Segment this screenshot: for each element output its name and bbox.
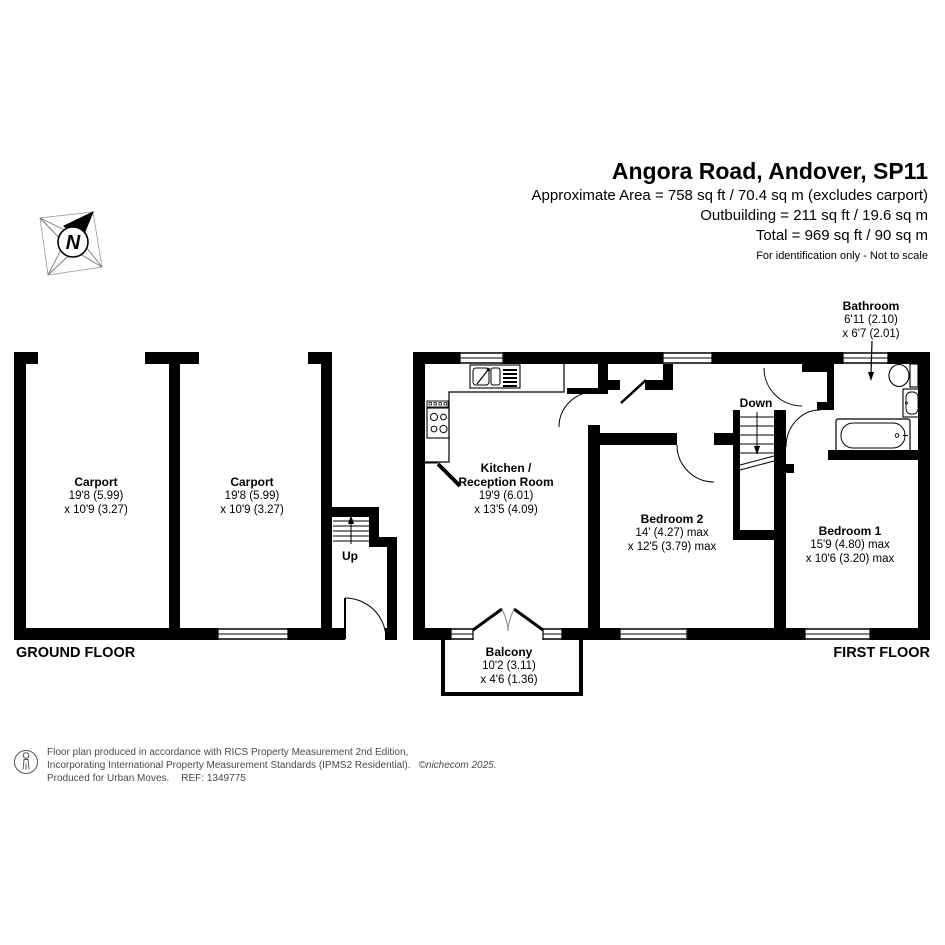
kitchen-corner-unit xyxy=(425,463,460,486)
annex-door xyxy=(345,598,386,639)
reference-number: REF: 1349775 xyxy=(181,773,246,784)
person-badge-icon xyxy=(13,746,40,780)
footer-line-2: Incorporating International Property Mea… xyxy=(47,759,496,772)
balcony-sidelight-right xyxy=(543,628,562,640)
room-label-kitchen: Kitchen / Reception Room 19'9 (6.01) x 1… xyxy=(458,461,553,517)
french-doors xyxy=(473,609,543,631)
carport-window xyxy=(218,628,288,640)
footer-text: Floor plan produced in accordance with R… xyxy=(47,746,496,785)
footer-line-3: Produced for Urban Moves.REF: 1349775 xyxy=(47,772,496,785)
room-label-bedroom-2: Bedroom 2 14' (4.27) max x 12'5 (3.79) m… xyxy=(628,512,717,554)
kitchen-counter xyxy=(425,364,564,462)
footer: Floor plan produced in accordance with R… xyxy=(13,746,496,785)
landing-window xyxy=(663,352,712,364)
bedroom2-door-arc xyxy=(677,445,714,482)
stairs-up-label: Up xyxy=(342,549,358,563)
balcony-sidelight-left xyxy=(451,628,473,640)
cupboard-door xyxy=(621,380,646,403)
bedroom2-window xyxy=(620,628,687,640)
kitchen-door-arc xyxy=(559,392,594,427)
first-floor-label: FIRST FLOOR xyxy=(833,645,930,661)
hob-icon xyxy=(427,401,449,438)
footer-line-1: Floor plan produced in accordance with R… xyxy=(47,746,496,759)
bathroom-window xyxy=(843,352,888,364)
room-label-bedroom-1: Bedroom 1 15'9 (4.80) max x 10'6 (3.20) … xyxy=(806,524,895,566)
room-label-carport-2: Carport 19'8 (5.99) x 10'9 (3.27) xyxy=(220,475,284,517)
stairs-down xyxy=(740,412,774,470)
stairs-down-label: Down xyxy=(740,396,773,410)
bedroom1-window xyxy=(805,628,870,640)
toilet-icon xyxy=(889,364,918,387)
floor-plan-page: Angora Road, Andover, SP11 Approximate A… xyxy=(0,0,945,945)
bedroom1-door-arc xyxy=(786,410,820,447)
ground-floor-label: GROUND FLOOR xyxy=(16,645,135,661)
bathtub-icon xyxy=(836,419,910,452)
basin-icon xyxy=(903,389,920,417)
sink-icon xyxy=(470,365,520,388)
room-label-bathroom: Bathroom 6'11 (2.10) x 6'7 (2.01) xyxy=(842,299,899,341)
room-label-carport-1: Carport 19'8 (5.99) x 10'9 (3.27) xyxy=(64,475,128,517)
room-label-balcony: Balcony 10'2 (3.11) x 4'6 (1.36) xyxy=(480,645,537,687)
copyright: ©nichecom 2025. xyxy=(419,760,497,771)
down-arrowhead xyxy=(754,446,760,455)
kitchen-window xyxy=(460,352,503,364)
